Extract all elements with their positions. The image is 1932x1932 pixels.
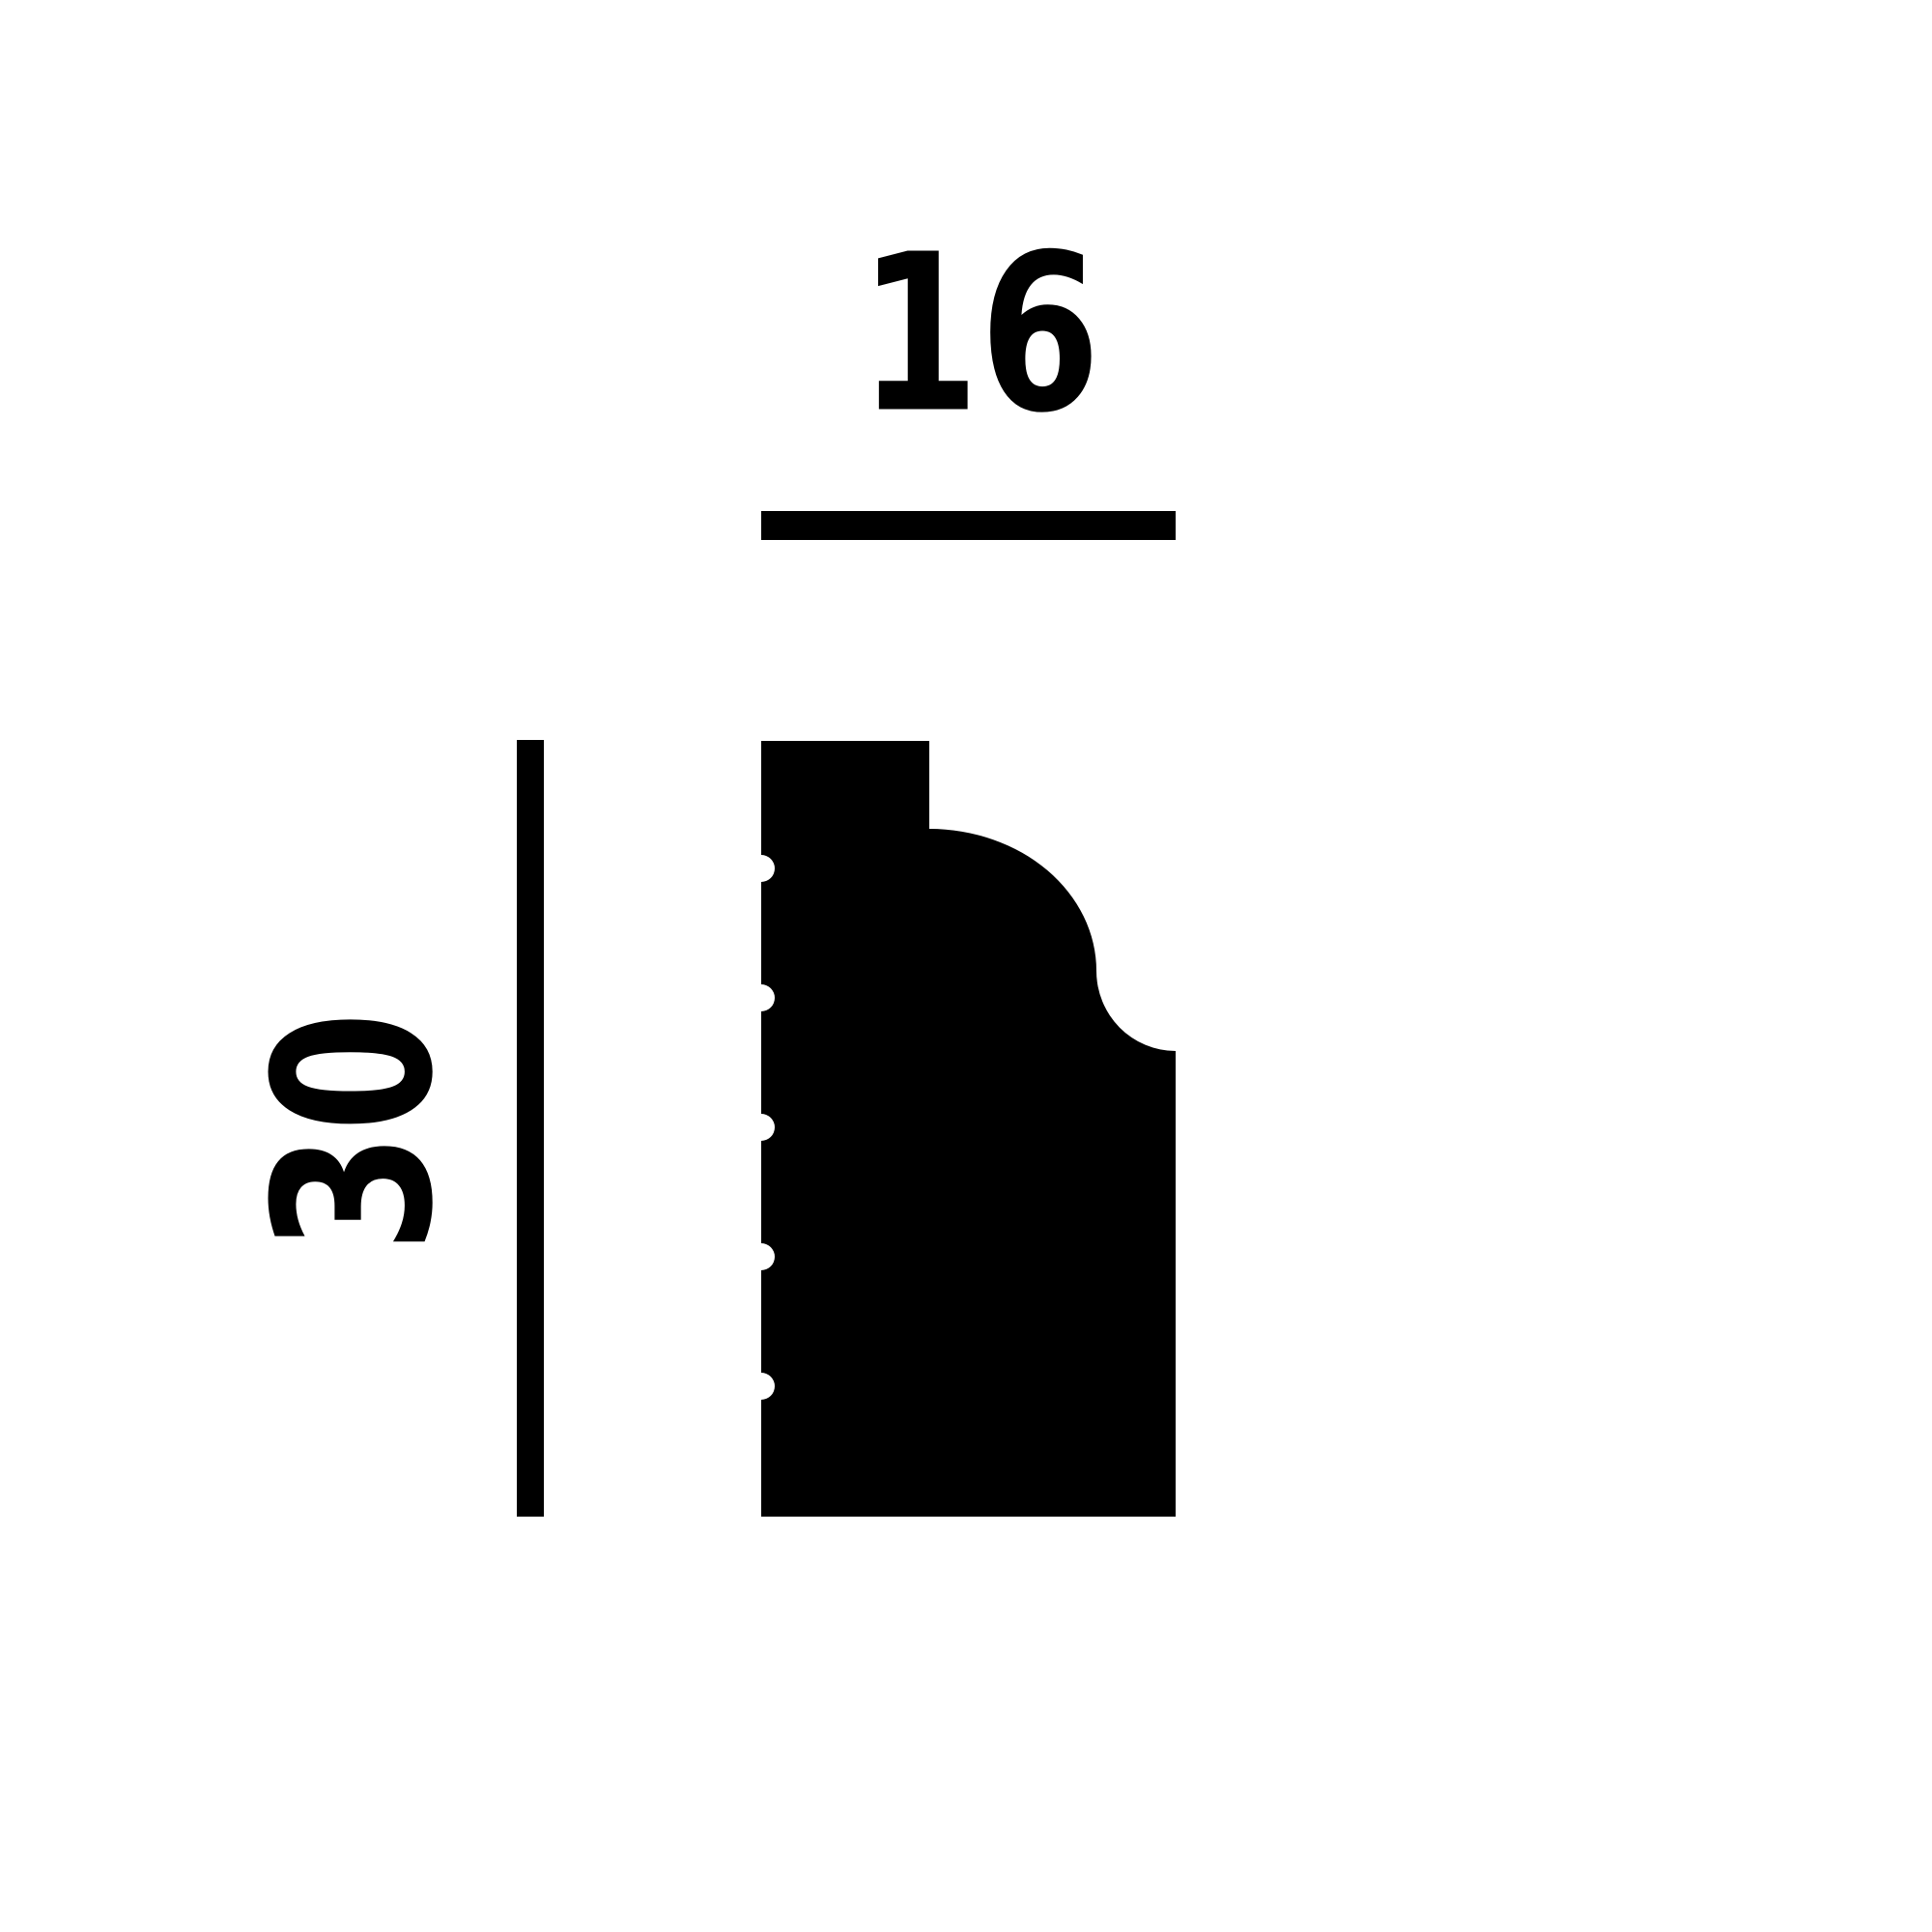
profile-path: [761, 741, 1176, 1517]
width-dimension-line: [761, 511, 1176, 540]
technical-drawing-canvas: 16 30: [0, 0, 1932, 1932]
height-dimension-label: 30: [247, 1011, 465, 1254]
molding-profile-shape: [761, 741, 1176, 1517]
height-dimension-line: [517, 740, 544, 1517]
width-dimension-label: 16: [859, 227, 1101, 444]
